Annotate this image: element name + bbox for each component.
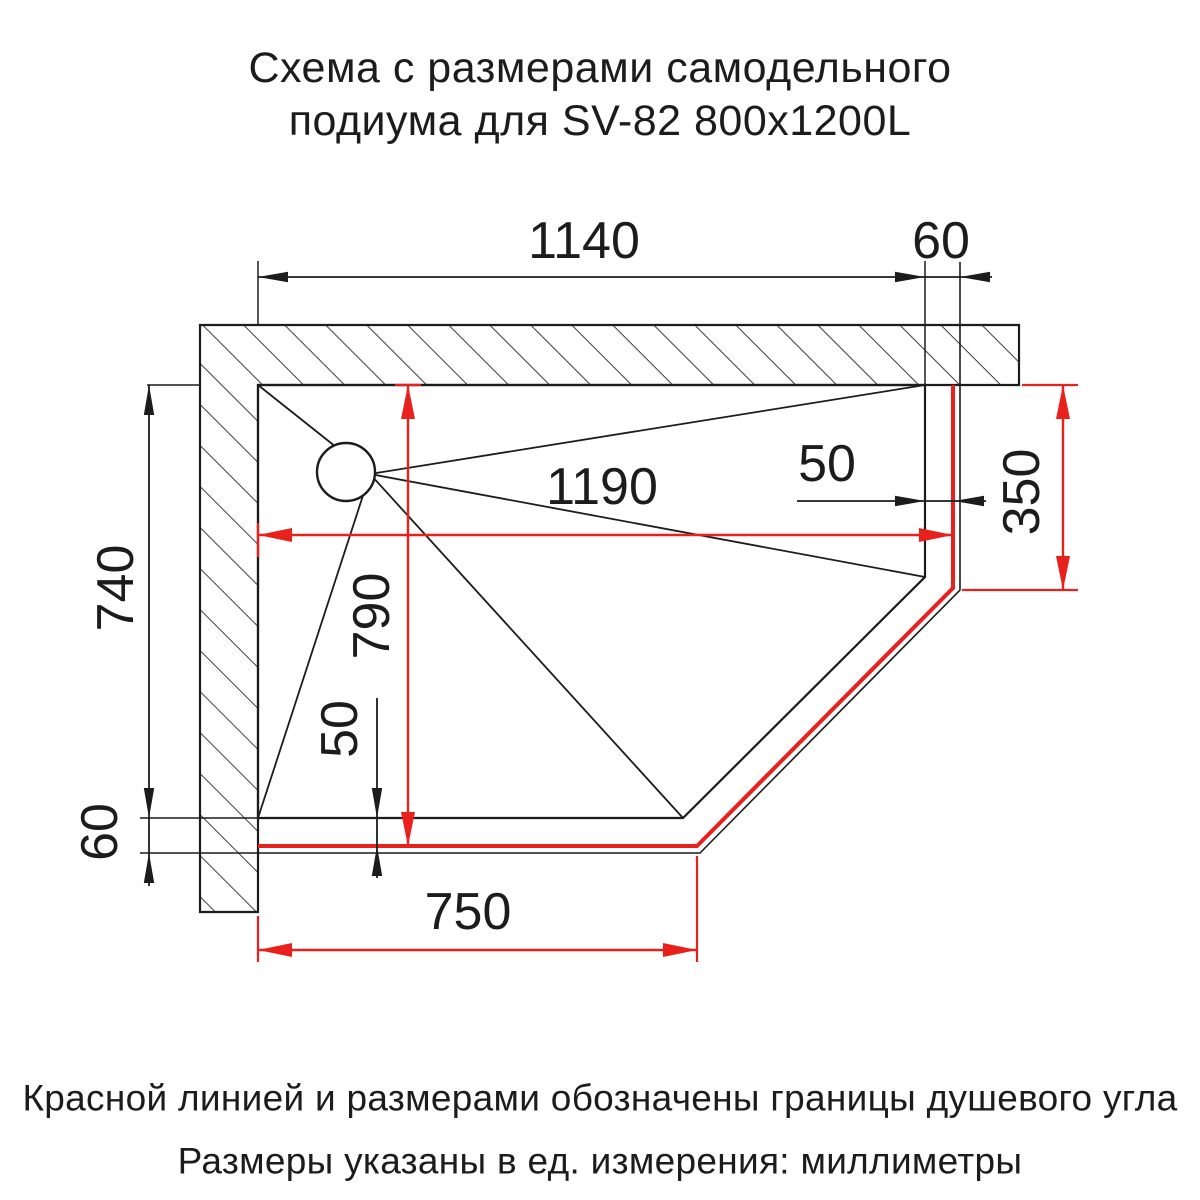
arrowhead xyxy=(1056,385,1070,419)
dim-bottom-edge-width: 750 xyxy=(258,856,697,962)
arrowhead xyxy=(258,943,292,957)
arrowhead xyxy=(663,943,697,957)
drawing-title: Схема с размерами самодельного подиума д… xyxy=(248,44,951,145)
dim-boundary-offset-bottom: 50 xyxy=(311,698,382,878)
arrowhead xyxy=(895,272,925,282)
slope-line xyxy=(370,474,683,818)
drawing-page: Схема с размерами самодельного подиума д… xyxy=(0,0,1200,1200)
dim-tray-overhang-right: 60 xyxy=(912,212,990,282)
dim-shower-corner-height-label: 790 xyxy=(343,573,401,660)
dim-tray-overhang-bottom-label: 60 xyxy=(71,803,129,861)
dim-shower-corner-right-side-label: 350 xyxy=(993,449,1051,536)
arrowhead xyxy=(144,853,154,883)
arrowhead xyxy=(258,528,292,542)
arrowhead xyxy=(954,496,984,506)
dim-shower-corner-right-side: 350 xyxy=(962,385,1078,590)
arrowhead xyxy=(401,812,415,846)
arrowhead xyxy=(919,528,953,542)
arrowhead xyxy=(144,788,154,818)
arrowhead xyxy=(960,272,990,282)
note-line-2: Размеры указаны в ед. измерения: миллиме… xyxy=(178,1141,1023,1182)
dim-podium-width: 1140 xyxy=(258,212,992,282)
note-line-1: Красной линией и размерами обозначены гр… xyxy=(22,1078,1177,1119)
dim-boundary-offset-bottom-label: 50 xyxy=(311,700,369,758)
dim-podium-height-label: 740 xyxy=(87,545,145,632)
title-line-2: подиума для SV-82 800x1200L xyxy=(289,97,912,145)
dim-boundary-offset-right-label: 50 xyxy=(798,435,856,493)
arrowhead xyxy=(372,788,382,818)
arrowhead xyxy=(144,385,154,415)
drawing-notes: Красной линией и размерами обозначены гр… xyxy=(22,1078,1177,1182)
arrowhead xyxy=(895,496,925,506)
arrowhead xyxy=(401,385,415,419)
arrowhead xyxy=(1056,556,1070,590)
title-line-1: Схема с размерами самодельного xyxy=(248,44,951,92)
dim-boundary-offset-right: 50 xyxy=(797,435,986,506)
dim-podium-width-label: 1140 xyxy=(528,212,640,270)
drain-circle xyxy=(317,443,375,501)
arrowhead xyxy=(258,272,288,282)
dim-bottom-edge-width-label: 750 xyxy=(425,883,512,941)
dim-tray-overhang-bottom: 60 xyxy=(71,803,154,883)
arrowhead xyxy=(372,846,382,876)
dim-tray-overhang-right-label: 60 xyxy=(912,212,970,270)
podium-dimension-drawing: Схема с размерами самодельного подиума д… xyxy=(0,0,1200,1200)
dim-shower-corner-width-label: 1190 xyxy=(546,458,658,516)
